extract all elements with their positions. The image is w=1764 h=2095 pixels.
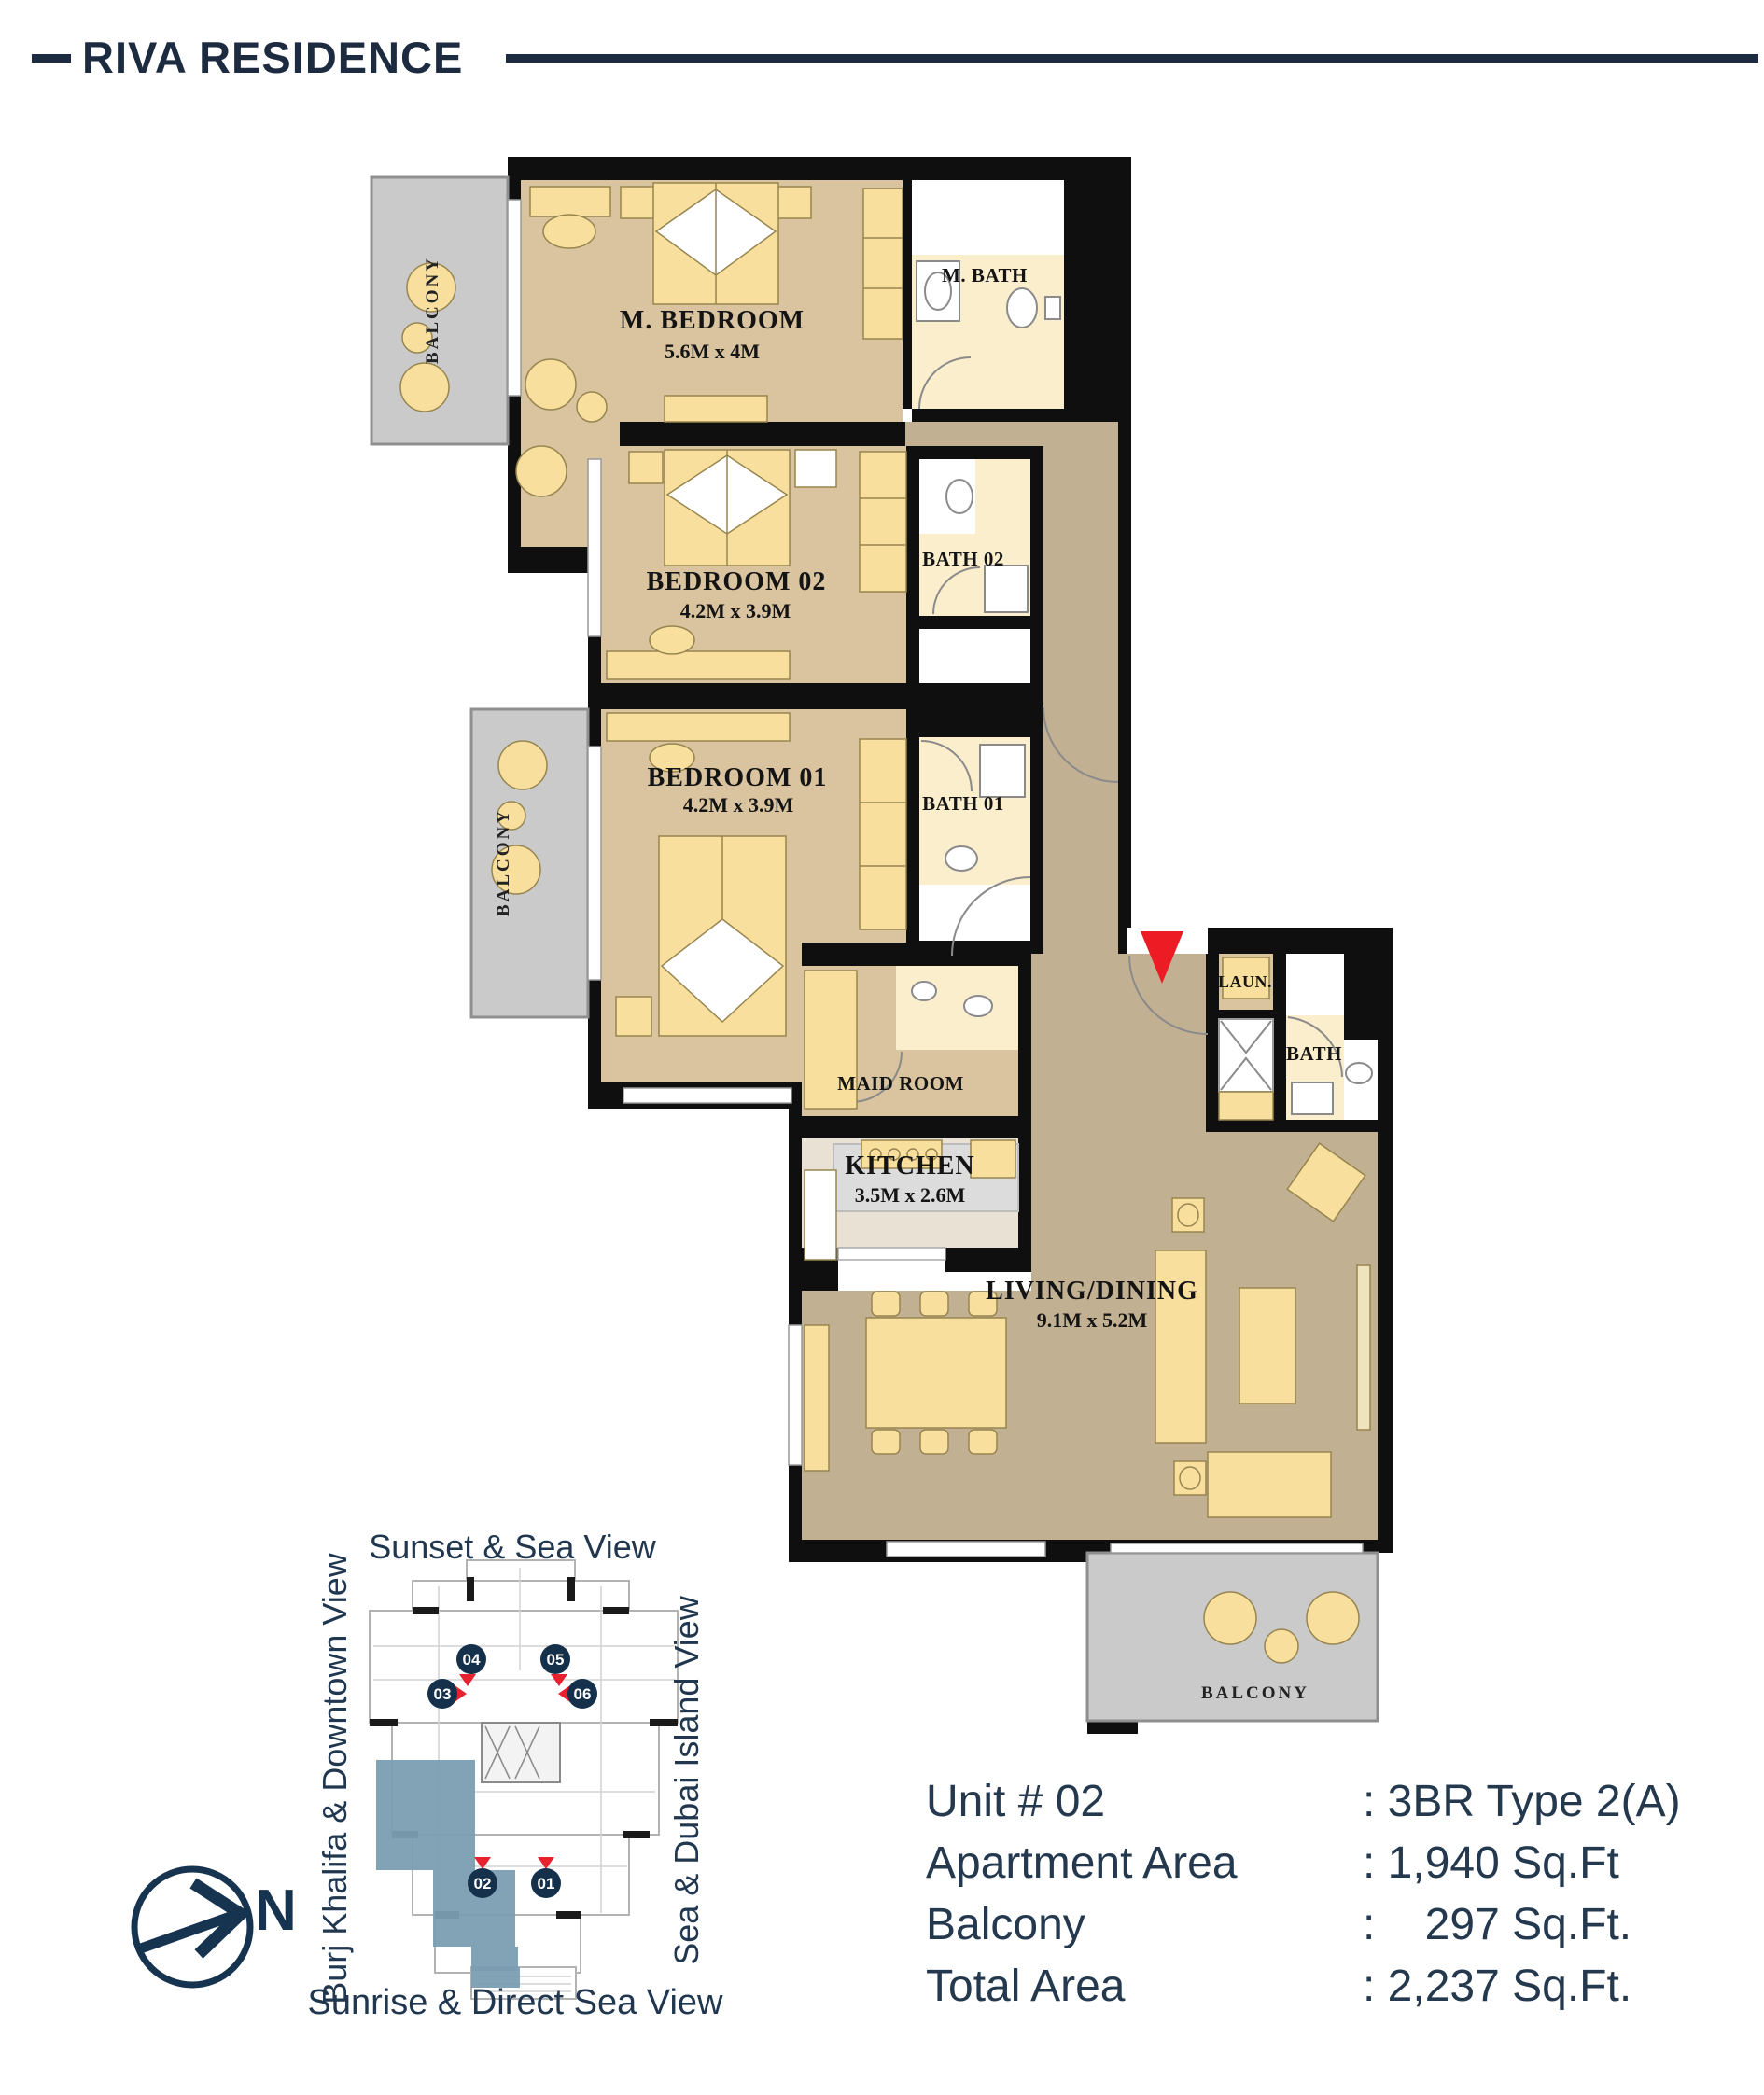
balcony-bottom-label: BALCONY: [1201, 1683, 1309, 1703]
unit-badge-02: 02: [474, 1875, 492, 1892]
view-label-bottom: Sunrise & Direct Sea View: [308, 1983, 723, 2022]
entry-hall-floor: [1031, 954, 1206, 1132]
bath-shower: [1286, 954, 1344, 1015]
bedroom02-dims: 4.2M x 3.9M: [680, 599, 791, 622]
total-area-value: : 2,237 Sq.Ft.: [1363, 1956, 1631, 2018]
laundry-label: LAUN.: [1218, 972, 1272, 991]
view-label-top: Sunset & Sea View: [369, 1528, 657, 1566]
key-plan: 04 05 03 06 02 01 Sunset & Sea View Sunr…: [134, 1528, 723, 2022]
bedroom01-dims: 4.2M x 3.9M: [683, 793, 794, 817]
unit-info-row: Unit # 02 : 3BR Type 2(A): [926, 1771, 1681, 1833]
kitchen-pass-window: [838, 1248, 945, 1260]
unit-badge-04: 04: [463, 1651, 481, 1669]
unit-badge-05: 05: [547, 1651, 565, 1669]
balcony-area-label: Balcony: [926, 1894, 1363, 1956]
total-area-label: Total Area: [926, 1956, 1363, 2018]
bath02-label: BATH 02: [922, 548, 1004, 570]
balcony-mid-label: BALCONY: [494, 808, 513, 916]
view-label-right: Sea & Dubai Island View: [667, 1595, 706, 1965]
m-bath-label: M. BATH: [942, 264, 1028, 286]
bath01-label: BATH 01: [922, 792, 1004, 815]
kitchen-dims: 3.5M x 2.6M: [855, 1183, 966, 1207]
unit-info-row: Apartment Area : 1,940 Sq.Ft: [926, 1833, 1681, 1894]
bath-label: BATH: [1286, 1042, 1342, 1065]
bedroom02-label: BEDROOM 02: [647, 567, 827, 596]
hall-strip: [905, 422, 1118, 446]
corridor-floor: [1043, 446, 1118, 954]
north-label: N: [255, 1879, 297, 1943]
m-bedroom-dims: 5.6M x 4M: [665, 340, 760, 363]
maid-bath-floor: [896, 966, 1018, 1050]
kitchen-label: KITCHEN: [845, 1152, 974, 1180]
m-bath-shower: [912, 180, 1064, 255]
unit-info-row: Balcony : 297 Sq.Ft.: [926, 1894, 1681, 1956]
brochure-page: RIVA RESIDENCE: [0, 0, 1764, 2095]
closet-shelf: [1219, 1092, 1273, 1120]
balcony-top-label: BALCONY: [423, 256, 442, 364]
unit-info-table: Unit # 02 : 3BR Type 2(A) Apartment Area…: [926, 1771, 1681, 2018]
bedroom01-label: BEDROOM 01: [648, 763, 828, 792]
unit-badge-03: 03: [434, 1685, 452, 1703]
maid-room-label: MAID ROOM: [837, 1072, 964, 1095]
balcony-area-value: : 297 Sq.Ft.: [1363, 1894, 1631, 1956]
unit-number-label: Unit # 02: [926, 1771, 1363, 1833]
living-dining-label: LIVING/DINING: [986, 1277, 1198, 1306]
unit-info-row: Total Area : 2,237 Sq.Ft.: [926, 1956, 1681, 2018]
unit-badge-01: 01: [538, 1875, 555, 1892]
unit-badge-06: 06: [574, 1685, 592, 1703]
bath01-vanity-area: [919, 885, 1030, 941]
apartment-area-value: : 1,940 Sq.Ft: [1363, 1833, 1619, 1894]
living-dining-dims: 9.1M x 5.2M: [1037, 1308, 1148, 1332]
unit-number-value: : 3BR Type 2(A): [1363, 1771, 1681, 1833]
m-bedroom-label: M. BEDROOM: [620, 306, 805, 335]
north-compass-icon: N: [134, 1869, 297, 1985]
apartment-area-label: Apartment Area: [926, 1833, 1363, 1894]
view-label-left: Burj Khalifa & Downtown View: [315, 1552, 354, 2004]
